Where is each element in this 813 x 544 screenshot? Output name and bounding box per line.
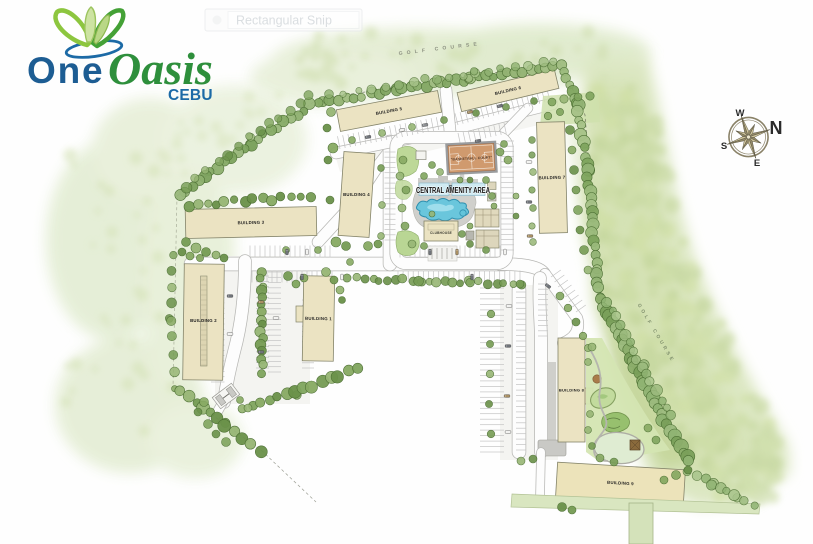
svg-text:CLUBHOUSE: CLUBHOUSE bbox=[430, 231, 452, 235]
svg-text:BUILDING 3: BUILDING 3 bbox=[238, 220, 265, 226]
svg-text:One: One bbox=[27, 50, 104, 91]
svg-text:Rectangular Snip: Rectangular Snip bbox=[236, 14, 332, 28]
svg-text:E: E bbox=[754, 158, 760, 169]
svg-text:S: S bbox=[721, 141, 727, 152]
svg-text:CENTRAL AMENITY AREA: CENTRAL AMENITY AREA bbox=[416, 186, 490, 195]
svg-text:BUILDING 4: BUILDING 4 bbox=[343, 192, 370, 197]
svg-text:BUILDING 8: BUILDING 8 bbox=[559, 388, 585, 393]
svg-text:BUILDING 2: BUILDING 2 bbox=[190, 318, 217, 323]
svg-text:BUILDING 1: BUILDING 1 bbox=[305, 316, 332, 321]
svg-text:W: W bbox=[736, 108, 745, 119]
svg-text:N: N bbox=[770, 118, 783, 138]
svg-text:CEBU: CEBU bbox=[168, 87, 213, 104]
svg-text:BUILDING 7: BUILDING 7 bbox=[539, 175, 566, 181]
